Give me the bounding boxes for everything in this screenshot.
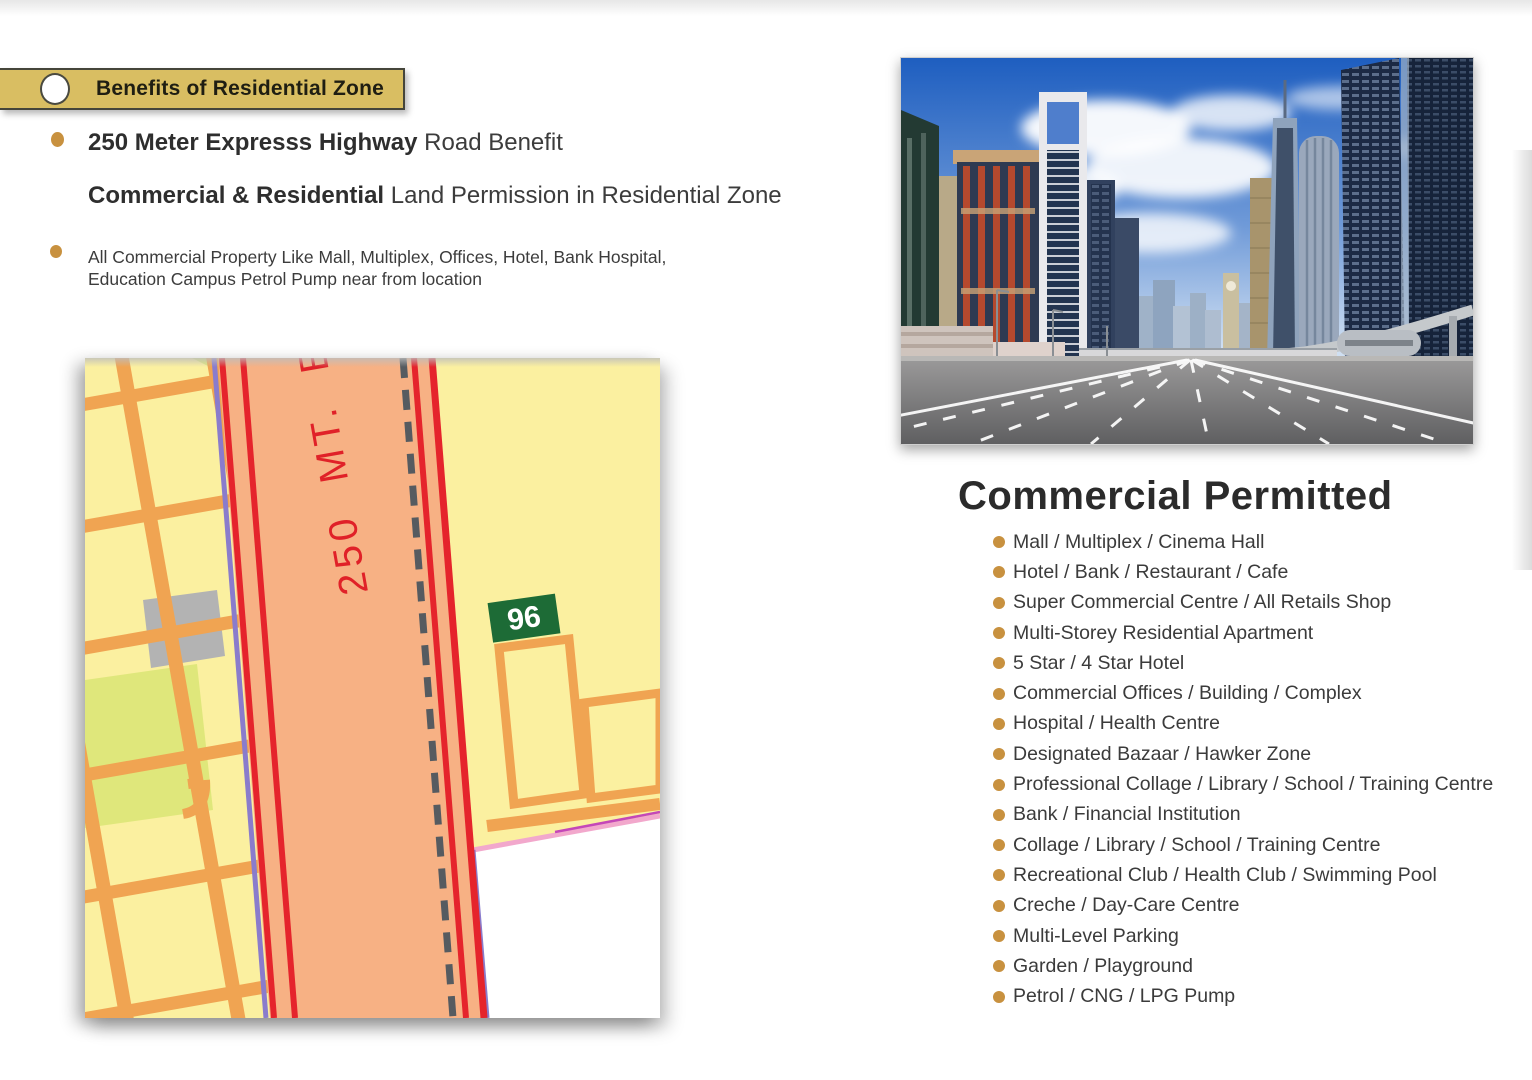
section-banner: Benefits of Residential Zone — [0, 68, 405, 110]
bullet-icon — [50, 245, 62, 258]
list-item: 5 Star / 4 Star Hotel — [993, 648, 1493, 678]
benefit-note: All Commercial Property Like Mall, Multi… — [88, 246, 666, 290]
list-item: Professional Collage / Library / School … — [993, 769, 1493, 799]
list-item: Hotel / Bank / Restaurant / Cafe — [993, 557, 1493, 587]
note-line-1: All Commercial Property Like Mall, Multi… — [88, 246, 666, 268]
list-item: Multi-Level Parking — [993, 921, 1493, 951]
bullet-icon — [993, 869, 1005, 881]
list-item-label: Creche / Day-Care Centre — [1013, 894, 1240, 917]
navy-tower — [1341, 58, 1405, 360]
page-right-shadow — [1512, 150, 1532, 570]
bullet-icon — [993, 991, 1005, 1003]
city-photo — [900, 57, 1474, 445]
bullet-icon — [993, 900, 1005, 912]
list-item-label: Mall / Multiplex / Cinema Hall — [1013, 531, 1264, 554]
map-road-stub — [188, 782, 203, 784]
benefit-line-1: 250 Meter Expresss Highway Road Benefit — [88, 129, 563, 157]
list-item: Recreational Club / Health Club / Swimmi… — [993, 860, 1493, 890]
list-item: Creche / Day-Care Centre — [993, 891, 1493, 921]
red-tower-cornice — [953, 150, 1045, 164]
bullet-icon — [993, 688, 1005, 700]
bullet-icon — [993, 536, 1005, 548]
page-top-shadow — [0, 0, 1532, 16]
circle-icon — [40, 73, 70, 105]
list-item-label: Commercial Offices / Building / Complex — [1013, 682, 1362, 705]
benefit-line-2: Commercial & Residential Land Permission… — [88, 182, 782, 210]
bullet-icon — [993, 809, 1005, 821]
benefit-line-1-bold: 250 Meter Expresss Highway — [88, 129, 418, 156]
bullet-icon — [993, 718, 1005, 730]
benefit-line-2-rest: Land Permission in Residential Zone — [384, 182, 782, 209]
list-item: Bank / Financial Institution — [993, 800, 1493, 830]
list-item: Super Commercial Centre / All Retails Sh… — [993, 588, 1493, 618]
note-line-2: Education Campus Petrol Pump near from l… — [88, 268, 666, 290]
list-item-label: Bank / Financial Institution — [1013, 803, 1241, 826]
bullet-icon — [993, 597, 1005, 609]
list-item-label: Designated Bazaar / Hawker Zone — [1013, 743, 1311, 766]
zoning-map-svg: 250 MT. EX 96 — [85, 358, 660, 1018]
list-item-label: Hospital / Health Centre — [1013, 712, 1220, 735]
bullet-icon — [993, 960, 1005, 972]
benefit-line-2-bold: Commercial & Residential — [88, 182, 384, 209]
list-item-label: Hotel / Bank / Restaurant / Cafe — [1013, 561, 1288, 584]
photo-road — [901, 356, 1473, 444]
bullet-icon — [993, 930, 1005, 942]
slide-page: { "banner": { "title": "Benefits of Resi… — [0, 0, 1532, 1080]
list-item-label: Professional Collage / Library / School … — [1013, 773, 1493, 796]
bullet-icon — [51, 132, 64, 147]
list-item: Designated Bazaar / Hawker Zone — [993, 739, 1493, 769]
bullet-icon — [993, 748, 1005, 760]
list-item: Collage / Library / School / Training Ce… — [993, 830, 1493, 860]
list-item-label: Multi-Storey Residential Apartment — [1013, 622, 1313, 645]
bullet-icon — [993, 779, 1005, 791]
banner-title: Benefits of Residential Zone — [96, 77, 384, 101]
cylindrical-tower — [1299, 136, 1339, 360]
zoning-map: 250 MT. EX 96 — [85, 358, 660, 1018]
bullet-icon — [993, 627, 1005, 639]
commercial-permitted-list: Mall / Multiplex / Cinema Hall Hotel / B… — [993, 527, 1493, 1012]
list-item: Commercial Offices / Building / Complex — [993, 678, 1493, 708]
list-item: Multi-Storey Residential Apartment — [993, 618, 1493, 648]
list-item-label: Recreational Club / Health Club / Swimmi… — [1013, 864, 1437, 887]
list-item: Garden / Playground — [993, 951, 1493, 981]
city-photo-svg — [901, 58, 1473, 444]
bullet-icon — [993, 566, 1005, 578]
map-marker-label: 96 — [505, 600, 543, 637]
map-top-edge — [85, 358, 660, 367]
list-item: Hospital / Health Centre — [993, 709, 1493, 739]
list-item-label: Collage / Library / School / Training Ce… — [1013, 834, 1380, 857]
list-item-label: Multi-Level Parking — [1013, 925, 1179, 948]
commercial-permitted-title: Commercial Permitted — [958, 474, 1393, 519]
list-item: Mall / Multiplex / Cinema Hall — [993, 527, 1493, 557]
bullet-icon — [993, 657, 1005, 669]
list-item-label: Garden / Playground — [1013, 955, 1193, 978]
list-item: Petrol / CNG / LPG Pump — [993, 981, 1493, 1011]
list-item-label: Super Commercial Centre / All Retails Sh… — [1013, 591, 1391, 614]
benefit-line-1-rest: Road Benefit — [418, 129, 563, 156]
bullet-icon — [993, 839, 1005, 851]
list-item-label: 5 Star / 4 Star Hotel — [1013, 652, 1184, 675]
list-item-label: Petrol / CNG / LPG Pump — [1013, 985, 1235, 1008]
